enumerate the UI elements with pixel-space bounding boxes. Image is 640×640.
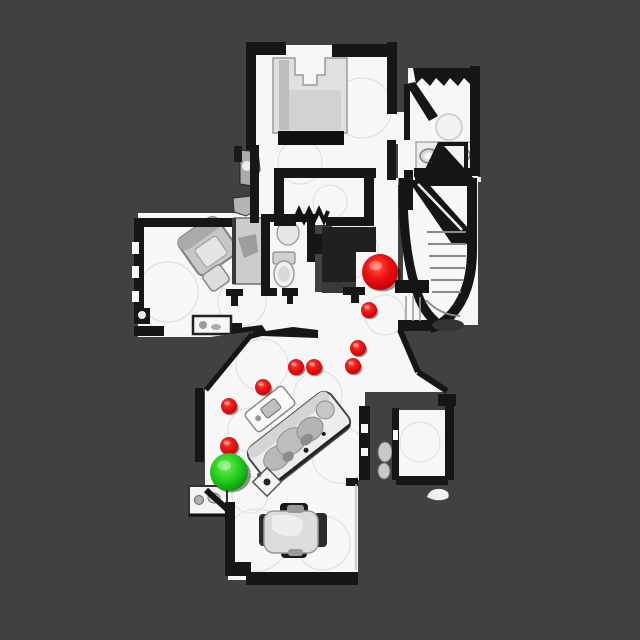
waypoint-dot	[345, 358, 361, 374]
goal-marker	[362, 254, 398, 290]
bath-rug	[436, 114, 462, 140]
floor-plan-svg	[0, 0, 640, 640]
waypoint-dot	[221, 398, 237, 414]
waypoint-dot	[350, 340, 366, 356]
toilet	[273, 252, 295, 287]
floor-plan-viewport	[0, 0, 640, 640]
bed-shadow	[278, 131, 344, 145]
waypoint-dot	[361, 302, 377, 318]
daybed	[232, 218, 264, 284]
waypoint-dot	[288, 359, 304, 375]
doorway-shelf	[193, 316, 231, 334]
start-marker	[210, 453, 248, 491]
waypoint-dot	[255, 379, 271, 395]
waypoint-dot	[306, 359, 322, 375]
entry-object-2	[378, 463, 390, 479]
waypoint-dot	[220, 437, 238, 455]
entry-object-1	[378, 442, 392, 462]
